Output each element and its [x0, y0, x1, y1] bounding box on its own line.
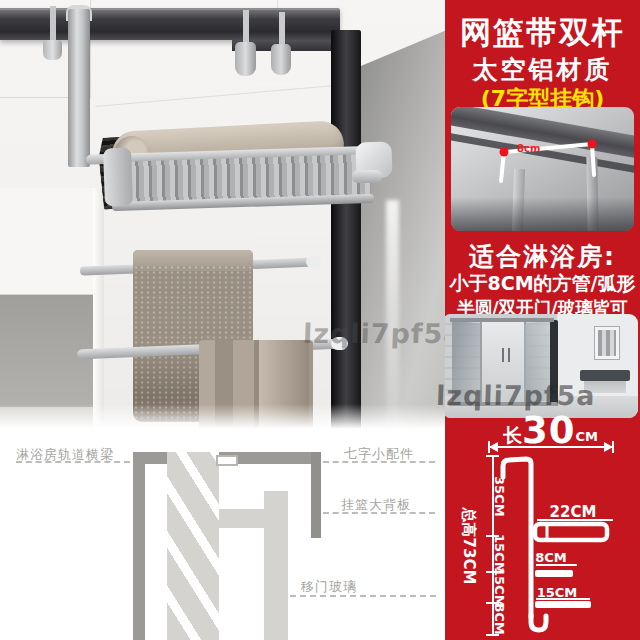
- door-handle: [508, 348, 510, 362]
- small-hook-neck: [243, 10, 249, 46]
- label-back-panel: 挂篮大背板: [341, 496, 411, 514]
- hook-dimension-label: 8cm: [517, 143, 540, 154]
- small-hook: [271, 44, 291, 75]
- watermark: lzqli7pf5a: [302, 318, 445, 349]
- small-hook: [43, 40, 62, 60]
- photo-bottom-fade: [0, 404, 445, 435]
- length-prefix: 长: [503, 422, 522, 448]
- dimension-underline: [536, 598, 590, 600]
- diagram-hook-leg: [311, 452, 321, 538]
- length-unit: CM: [576, 426, 598, 448]
- basket-left-cap: [103, 148, 133, 207]
- info-panel: 网篮带双杆 太空铝材质 (7字型挂钩) 8cm 适合淋浴房: 小于8CM的方管/…: [445, 0, 640, 640]
- dimension-underline: [537, 519, 613, 521]
- product-profile-drawing: [493, 450, 640, 640]
- picture-content: [598, 330, 616, 356]
- length-dimension-label: 长 30 CM: [503, 414, 598, 448]
- total-height-label: 总高73CM: [462, 491, 478, 601]
- shower-enclosure-top-frame: [450, 318, 554, 322]
- fit-line1: 小于8CM的方管/弧形: [445, 271, 640, 297]
- length-value: 30: [522, 414, 576, 448]
- diagram-glass-stub: [219, 509, 264, 528]
- picture-frame: [594, 326, 620, 360]
- hook-outline-overlay: [493, 139, 605, 189]
- diagram-hook-notch: [216, 455, 238, 466]
- diagram-beam-left-leg: [133, 452, 145, 640]
- fit-heading: 适合淋浴房:: [445, 240, 640, 273]
- towel-top-fold: [133, 250, 253, 266]
- tile-joint: [95, 85, 339, 107]
- panel-title: 网篮带双杆: [445, 12, 640, 54]
- small-hook-neck: [279, 12, 285, 46]
- hook-detail-photo: 8cm: [451, 107, 634, 231]
- small-hook: [235, 42, 256, 76]
- cabinet-panel: [0, 188, 93, 295]
- label-hook-part: 七字小配件: [344, 445, 414, 463]
- bar-8cm-label: 8CM: [531, 550, 571, 565]
- upper-towel-bar-cap: [306, 256, 321, 268]
- diagram-hatched-panel: [167, 452, 219, 640]
- basket-right-cap-lower: [352, 170, 382, 183]
- panel-material: 太空铝材质: [445, 53, 640, 86]
- label-track-beam: 淋浴房轨道横梁: [16, 446, 114, 464]
- photo-shadow: [451, 197, 634, 231]
- glass-panel: [361, 26, 445, 435]
- dimension-underline: [536, 564, 577, 566]
- diagram-door-glass-bar: [264, 491, 288, 640]
- glass-frame-post: [331, 30, 361, 435]
- small-hook-neck: [50, 6, 56, 44]
- watermark: lzqli7pf5a: [435, 380, 596, 411]
- hanging-strap: [68, 9, 90, 167]
- product-detail-image: lzqli7pf5a 网篮带双杆 太空铝材质 (7字型挂钩) 8cm 适合淋浴房…: [0, 0, 640, 640]
- label-door-glass: 移门玻璃: [301, 578, 357, 596]
- main-product-photo: lzqli7pf5a: [0, 0, 445, 435]
- wall-edge-highlight: [93, 188, 104, 430]
- length-arrow-line: [489, 446, 613, 448]
- door-handle: [502, 348, 504, 362]
